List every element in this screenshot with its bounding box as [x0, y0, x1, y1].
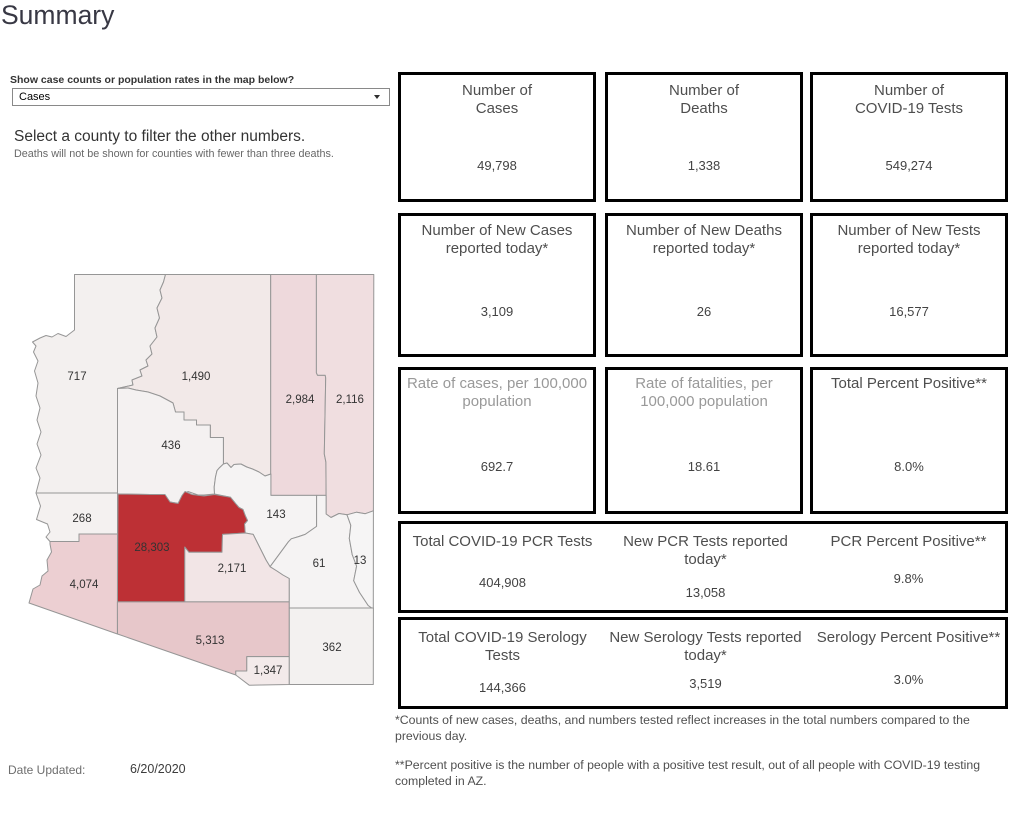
svg-text:13: 13 — [354, 555, 367, 567]
svg-text:143: 143 — [266, 509, 285, 521]
svg-text:5,313: 5,313 — [196, 635, 225, 647]
svg-text:28,303: 28,303 — [134, 542, 169, 554]
svg-text:2,116: 2,116 — [336, 394, 364, 406]
svg-text:2,171: 2,171 — [218, 563, 247, 575]
svg-text:362: 362 — [322, 642, 341, 654]
svg-text:4,074: 4,074 — [70, 579, 99, 591]
svg-text:2,984: 2,984 — [286, 394, 315, 406]
svg-text:1,490: 1,490 — [182, 371, 211, 383]
svg-text:1,347: 1,347 — [254, 665, 283, 677]
svg-text:717: 717 — [67, 371, 86, 383]
svg-text:436: 436 — [161, 440, 180, 452]
svg-text:268: 268 — [72, 513, 91, 525]
svg-text:61: 61 — [313, 558, 326, 570]
